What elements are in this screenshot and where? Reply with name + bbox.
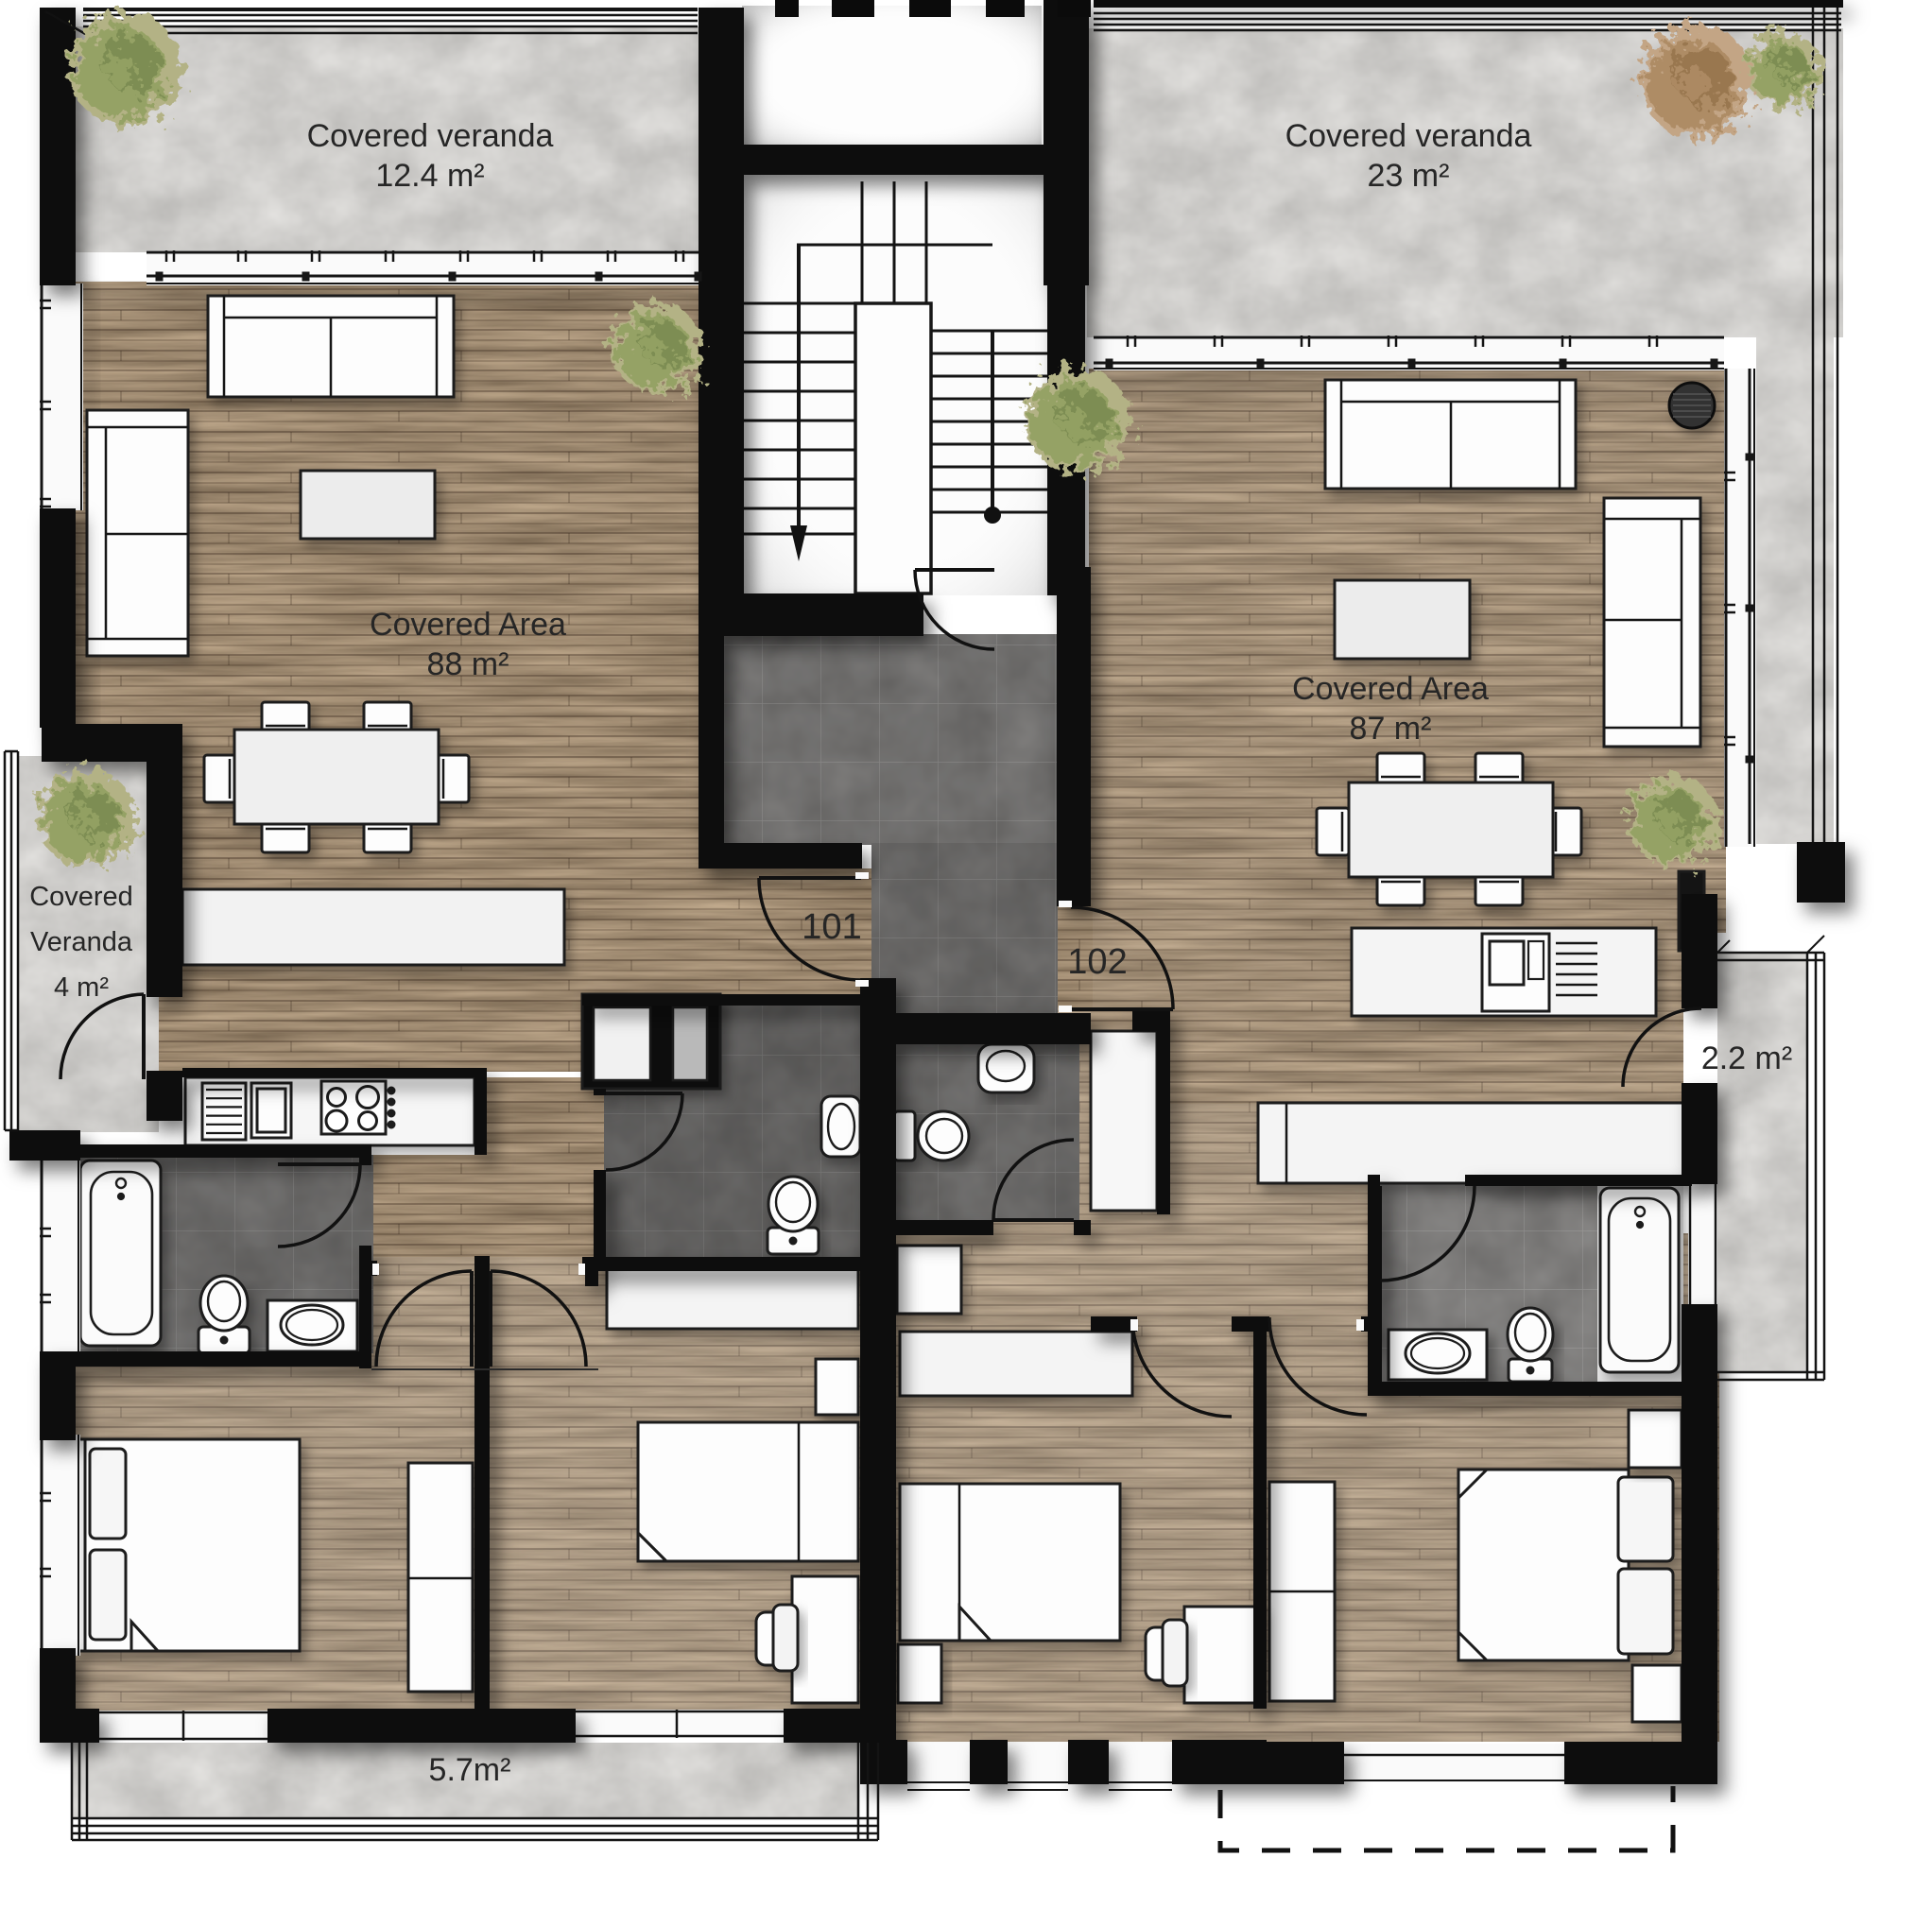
svg-text:Veranda: Veranda: [30, 927, 133, 957]
svg-text:Covered Area: Covered Area: [1292, 671, 1489, 707]
svg-text:87 m²: 87 m²: [1350, 711, 1432, 747]
svg-text:12.4 m²: 12.4 m²: [375, 158, 484, 194]
svg-text:2.2 m²: 2.2 m²: [1701, 1040, 1792, 1076]
svg-text:5.7m²: 5.7m²: [429, 1752, 511, 1788]
svg-text:101: 101: [802, 907, 861, 947]
svg-text:23 m²: 23 m²: [1368, 158, 1450, 194]
svg-text:Covered: Covered: [29, 882, 133, 912]
svg-text:Covered veranda: Covered veranda: [1285, 118, 1532, 154]
svg-text:Covered veranda: Covered veranda: [307, 118, 554, 154]
svg-text:Covered Area: Covered Area: [370, 607, 566, 643]
svg-text:102: 102: [1067, 942, 1127, 982]
svg-text:88 m²: 88 m²: [427, 646, 509, 682]
svg-text:4 m²: 4 m²: [54, 972, 109, 1003]
